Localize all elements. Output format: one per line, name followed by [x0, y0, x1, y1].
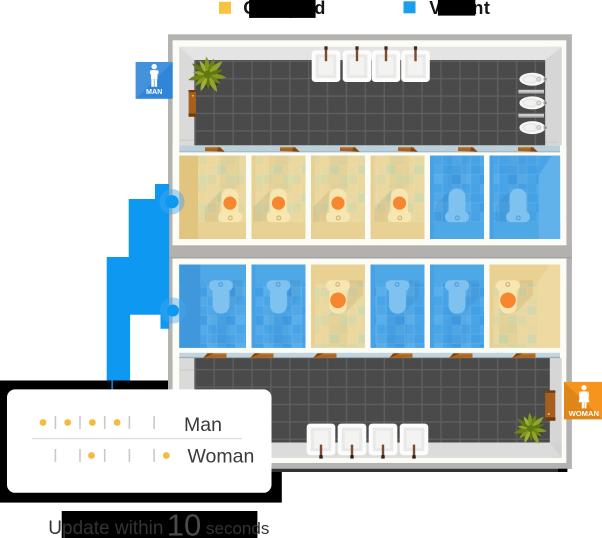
svg-text:Update within: Update within: [48, 518, 163, 538]
svg-text:seconds: seconds: [206, 519, 269, 538]
svg-text:Woman: Woman: [188, 446, 255, 468]
svg-text:10: 10: [167, 508, 201, 538]
svg-text:MAN: MAN: [146, 87, 162, 96]
svg-text:Man: Man: [184, 414, 222, 436]
svg-text:WOMAN: WOMAN: [569, 409, 599, 418]
